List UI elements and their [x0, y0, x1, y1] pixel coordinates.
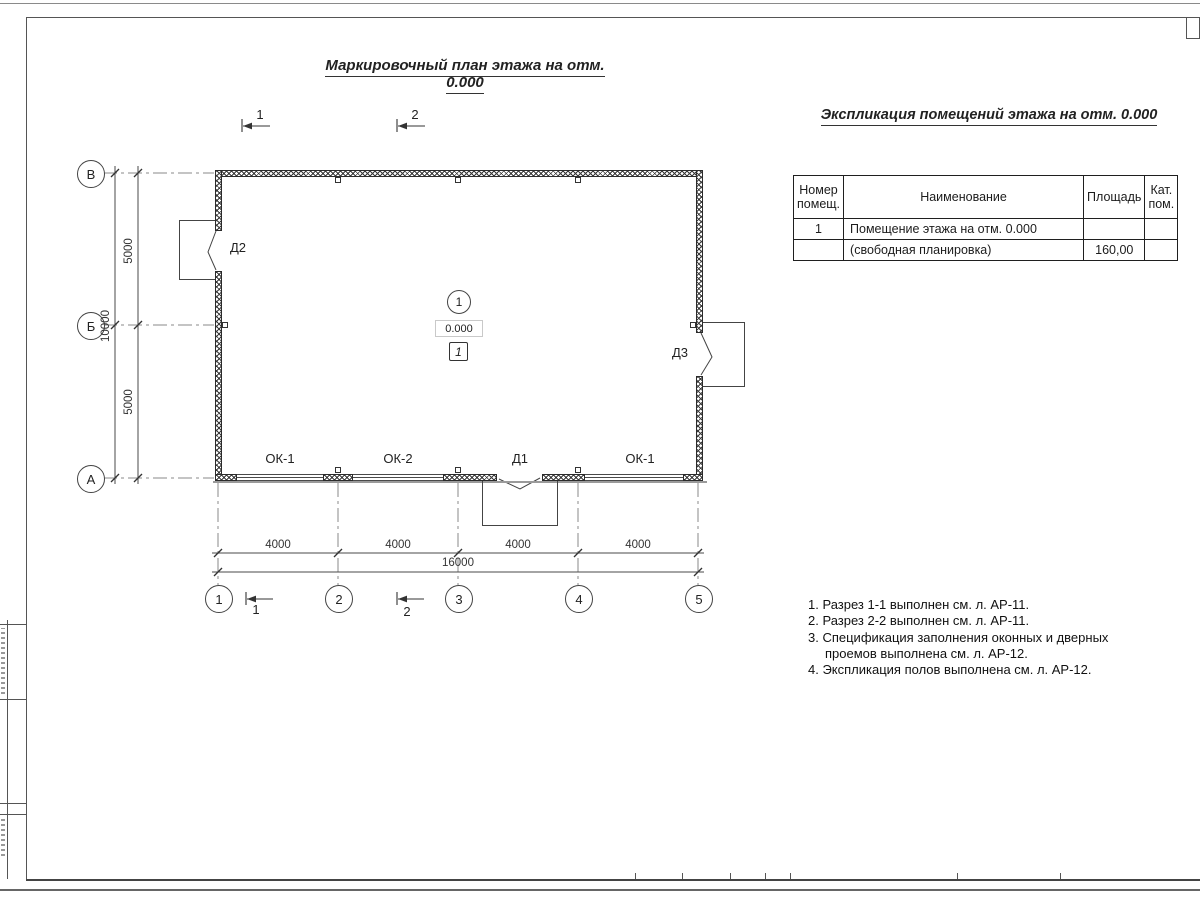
floor-type-number: 1	[455, 345, 462, 359]
dim-tick	[694, 549, 702, 557]
note-item: 1. Разрез 1-1 выполнен см. л. АР-11.	[808, 597, 1156, 613]
frame-attr-divider	[0, 803, 26, 804]
frame-attr-divider	[0, 814, 26, 815]
axis-bubble-row-a: А	[77, 465, 105, 493]
pilaster-mark	[455, 177, 461, 183]
frame-top-border	[26, 17, 1200, 18]
cell-area: 160,00	[1084, 240, 1145, 261]
table-row: (свободная планировка) 160,00	[794, 240, 1178, 261]
dim-text-4000: 4000	[618, 539, 658, 551]
table-row: 1 Помещение этажа на отм. 0.000	[794, 219, 1178, 240]
window-label-ok1-right: ОК-1	[618, 451, 662, 466]
dim-text-4000: 4000	[378, 539, 418, 551]
note-item: 2. Разрез 2-2 выполнен см. л. АР-11.	[808, 613, 1156, 629]
axis-bubble-col-3: 3	[445, 585, 473, 613]
titleblock-tick	[682, 873, 683, 879]
pilaster-mark	[455, 467, 461, 473]
titleblock-tick	[730, 873, 731, 879]
frame-attr-micro-text	[1, 628, 5, 694]
axis-label: 2	[335, 592, 342, 607]
axis-label: 3	[455, 592, 462, 607]
cell-name: Помещение этажа на отм. 0.000	[844, 219, 1084, 240]
section-number-2-bottom: 2	[399, 604, 415, 619]
table-header-area: Площадь	[1084, 176, 1145, 219]
dim-tick	[454, 549, 462, 557]
dim-tick	[134, 169, 142, 177]
wall-north	[215, 170, 703, 177]
porch-west	[179, 220, 215, 280]
dim-tick	[574, 549, 582, 557]
note-item: 4. Экспликация полов выполнена см. л. АР…	[808, 662, 1156, 678]
axis-label: 5	[695, 592, 702, 607]
wall-south-stub	[323, 474, 353, 481]
porch-south	[482, 481, 558, 526]
section-number-1-bottom: 1	[248, 602, 264, 617]
door-label-d1: Д1	[508, 451, 532, 466]
dim-tick	[334, 549, 342, 557]
table-title-text: Экспликация помещений этажа на отм. 0.00…	[821, 107, 1158, 126]
wall-east-lower	[696, 376, 703, 481]
table-header-category: Кат. пом.	[1145, 176, 1178, 219]
axis-label: 1	[215, 592, 222, 607]
window-ok1-left	[237, 474, 323, 481]
axis-label: Б	[87, 319, 96, 334]
cell-number	[794, 240, 844, 261]
titleblock-tick	[635, 873, 636, 879]
pilaster-mark	[575, 177, 581, 183]
section-number-2-top: 2	[407, 107, 423, 122]
dim-tick	[111, 474, 119, 482]
table-header-name: Наименование	[844, 176, 1084, 219]
plan-linework	[0, 0, 1200, 900]
axis-bubble-col-5: 5	[685, 585, 713, 613]
porch-east	[703, 322, 745, 387]
dim-text-5000-bottom: 5000	[123, 372, 139, 432]
axis-label: В	[87, 167, 96, 182]
dim-tick	[111, 169, 119, 177]
cell-category	[1145, 219, 1178, 240]
window-label-ok1-left: ОК-1	[258, 451, 302, 466]
cell-number: 1	[794, 219, 844, 240]
room-elevation-mark: 0.000	[435, 320, 483, 337]
window-label-ok2: ОК-2	[376, 451, 420, 466]
plan-title-text: Маркировочный план этажа на отм. 0.000	[325, 57, 604, 94]
dim-text-10000: 10000	[100, 296, 116, 356]
section-mark-2-bottom-arrow	[398, 596, 407, 603]
dim-tick	[214, 549, 222, 557]
wall-east-upper	[696, 170, 703, 333]
room-number: 1	[456, 295, 463, 309]
axis-bubble-row-v: В	[77, 160, 105, 188]
cell-category	[1145, 240, 1178, 261]
wall-west-lower	[215, 271, 222, 481]
window-ok1-right	[585, 474, 683, 481]
door-label-d2: Д2	[224, 240, 252, 255]
table-title: Экспликация помещений этажа на отм. 0.00…	[814, 107, 1164, 123]
titleblock-tick	[957, 873, 958, 879]
door-label-d3: Д3	[666, 345, 694, 360]
dim-tick	[694, 568, 702, 576]
pilaster-mark	[335, 467, 341, 473]
section-mark-2-top-arrow	[398, 123, 407, 130]
axis-label: А	[87, 472, 96, 487]
frame-attr-divider	[0, 624, 26, 625]
plan-title: Маркировочный план этажа на отм. 0.000	[310, 57, 620, 91]
sheet-outer-bottom-border	[0, 889, 1200, 891]
drawing-sheet: Маркировочный план этажа на отм. 0.000 Э…	[0, 0, 1200, 900]
dim-tick	[214, 568, 222, 576]
wall-south-stub	[542, 474, 585, 481]
floor-type-mark: 1	[449, 342, 468, 361]
dim-text-4000: 4000	[258, 539, 298, 551]
room-number-bubble: 1	[447, 290, 471, 314]
window-ok2	[353, 474, 443, 481]
table-header-row: Номер помещ. Наименование Площадь Кат. п…	[794, 176, 1178, 219]
dim-text-5000-top: 5000	[123, 221, 139, 281]
pilaster-mark	[222, 322, 228, 328]
pilaster-mark	[575, 467, 581, 473]
section-mark-1-top-arrow	[243, 123, 252, 130]
dim-text-16000: 16000	[433, 557, 483, 569]
wall-south-stub	[443, 474, 497, 481]
axis-bubble-col-2: 2	[325, 585, 353, 613]
table-header-number: Номер помещ.	[794, 176, 844, 219]
frame-attr-divider	[0, 699, 26, 700]
room-specification-table: Номер помещ. Наименование Площадь Кат. п…	[793, 175, 1178, 261]
frame-attr-micro-text	[1, 818, 5, 856]
titleblock-tick	[1060, 873, 1061, 879]
pilaster-mark	[690, 322, 696, 328]
wall-west-upper	[215, 170, 222, 231]
pilaster-mark	[335, 177, 341, 183]
wall-south-stub	[215, 474, 237, 481]
frame-bottom-border	[26, 879, 1200, 881]
axis-bubble-col-1: 1	[205, 585, 233, 613]
cell-area	[1084, 219, 1145, 240]
cell-name: (свободная планировка)	[844, 240, 1084, 261]
notes-list: 1. Разрез 1-1 выполнен см. л. АР-11. 2. …	[808, 597, 1156, 678]
titleblock-tick	[765, 873, 766, 879]
dim-text-4000: 4000	[498, 539, 538, 551]
titleblock-tick	[790, 873, 791, 879]
window-sill-line	[213, 481, 707, 483]
note-item: 3. Спецификация заполнения оконных и две…	[808, 630, 1156, 663]
section-number-1-top: 1	[252, 107, 268, 122]
frame-corner-box	[1186, 17, 1200, 39]
frame-attr-column-line	[7, 620, 8, 879]
dim-tick	[134, 474, 142, 482]
sheet-outer-top-border	[0, 3, 1200, 4]
axis-label: 4	[575, 592, 582, 607]
axis-bubble-col-4: 4	[565, 585, 593, 613]
wall-south-stub	[683, 474, 703, 481]
dim-tick	[134, 321, 142, 329]
frame-left-border	[26, 17, 27, 880]
